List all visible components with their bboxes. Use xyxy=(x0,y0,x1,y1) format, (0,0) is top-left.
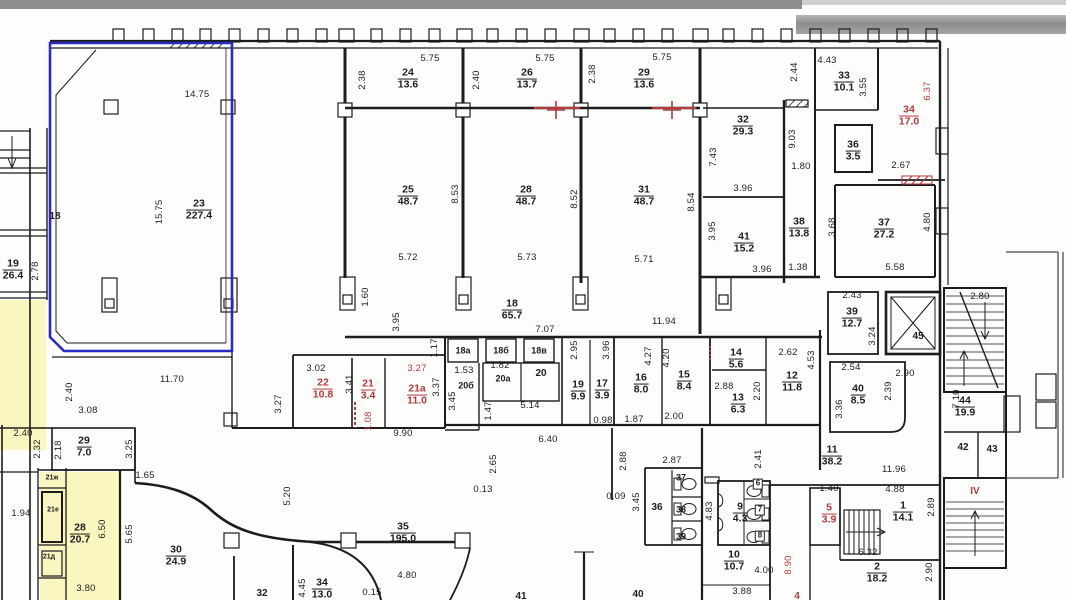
dimension-label: 3.96 xyxy=(602,340,612,359)
dimension-label: 2.88 xyxy=(619,451,629,470)
dimension-label: 5.58 xyxy=(885,263,904,273)
dimension-label: 9.90 xyxy=(393,429,412,439)
dimension-label: 2.18 xyxy=(54,440,64,459)
text-label-45: 45 xyxy=(912,332,923,342)
dimension-label: 3.45 xyxy=(448,391,458,410)
dimension-label: 3.02 xyxy=(306,364,325,374)
dimension-label: 2.65 xyxy=(489,454,499,473)
dimension-label: 11.94 xyxy=(652,317,676,327)
floor-plan: 23227.42413.62613.72913.63310.13417.0322… xyxy=(0,0,1066,600)
dimension-label: 1.60 xyxy=(361,287,371,306)
text-label-40: 40 xyxy=(632,590,643,600)
text-label-38: 38 xyxy=(676,505,686,514)
dimension-label: 2.38 xyxy=(588,64,598,83)
dimension-label: 0.13 xyxy=(473,485,492,495)
room-label-11: 1138.2 xyxy=(822,445,842,468)
dimension-label: 5.65 xyxy=(125,524,135,543)
dimension-label: 3.68 xyxy=(828,217,838,236)
dimension-label: 2.95 xyxy=(570,340,580,359)
dimension-label: 1.80 xyxy=(791,162,810,172)
text-label-20б: 20б xyxy=(458,381,474,390)
dimension-label: 4.83 xyxy=(705,501,715,520)
room-label-28: 2820.7 xyxy=(70,523,90,546)
dimension-label: 5.75 xyxy=(535,54,554,64)
dimension-label: 6.40 xyxy=(538,435,557,445)
dimension-label: 3.55 xyxy=(859,77,869,96)
dimension-label: 2.80 xyxy=(970,292,989,302)
room-label-36: 363.5 xyxy=(846,140,861,163)
room-label-32: 3229.3 xyxy=(733,115,753,138)
dimension-label: 2.40 xyxy=(65,382,75,401)
dimension-label: 4.27 xyxy=(644,346,654,365)
dimension-label: 4.80 xyxy=(923,212,933,231)
room-label-13: 136.3 xyxy=(731,393,746,416)
text-label-20: 20 xyxy=(535,369,546,379)
room-label-16: 168.0 xyxy=(634,373,649,396)
dimension-label: 2.44 xyxy=(790,62,800,81)
text-label-7: 7 xyxy=(755,505,765,516)
dimension-label: 3.08 xyxy=(78,406,97,416)
dimension-label: 2.87 xyxy=(662,456,681,466)
dimension-label: 0.15 xyxy=(362,588,381,598)
dimension-label: 1.53 xyxy=(454,366,473,376)
room-label-14: 145.6 xyxy=(729,348,744,371)
dimension-label: 1.94 xyxy=(11,509,30,519)
text-label-4: 4 xyxy=(794,592,800,600)
dimension-label: 11.70 xyxy=(160,375,184,385)
dimension-label: 1.47 xyxy=(484,401,494,420)
dimension-label: 2.43 xyxy=(842,291,861,301)
dimension-label: 5.73 xyxy=(517,253,536,263)
dimension-label: 5.20 xyxy=(283,486,293,505)
dimension-label: 1.38 xyxy=(788,263,807,273)
dimension-label: 1.65 xyxy=(135,471,154,481)
dimension-label: 15.75 xyxy=(155,200,165,225)
room-label-31: 3148.7 xyxy=(634,185,654,208)
dimension-label: 2.78 xyxy=(31,261,41,280)
text-label-6: 6 xyxy=(753,479,763,490)
dimension-label: 2.41 xyxy=(754,449,764,468)
room-label-24: 2413.6 xyxy=(398,68,418,91)
room-label-39: 3912.7 xyxy=(842,307,862,330)
dimension-label: 2.90 xyxy=(895,369,914,379)
dimension-label: 3.96 xyxy=(733,184,752,194)
text-label-20а: 20а xyxy=(495,374,510,383)
text-label-36: 36 xyxy=(651,503,662,513)
dimension-label: 3.88 xyxy=(732,587,751,597)
dimension-label: 3.80 xyxy=(76,584,95,594)
dimension-label: 2.20 xyxy=(753,381,763,400)
dimension-label: 3.41 xyxy=(345,374,355,393)
room-label-1: 114.1 xyxy=(893,501,913,524)
dimension-label: 8.53 xyxy=(451,184,461,203)
dimension-label: 8.54 xyxy=(687,192,697,211)
room-label-26: 2613.7 xyxy=(517,68,537,91)
dimension-label: 4.43 xyxy=(817,56,836,66)
room-label-17: 173.9 xyxy=(595,379,610,402)
room-label-37: 3727.2 xyxy=(874,218,894,241)
room-label-12: 1211.8 xyxy=(782,371,802,394)
dimension-label: 11.96 xyxy=(882,465,906,475)
room-label-22: 2210.8 xyxy=(313,378,333,401)
text-label-IV: IV xyxy=(970,487,979,497)
dimension-label: 4.20 xyxy=(662,348,672,367)
room-label-38: 3813.8 xyxy=(789,217,809,240)
room-label-19: 1926.4 xyxy=(3,259,23,282)
dimension-label: 2.39 xyxy=(884,381,894,400)
room-label-35: 35195.0 xyxy=(390,522,416,545)
text-label-21е: 21е xyxy=(47,506,59,513)
dimension-label: 2.40 xyxy=(472,70,482,89)
room-label-18: 1865.7 xyxy=(502,299,522,322)
room-label-33: 3310.1 xyxy=(834,71,854,94)
dimension-label: 4.80 xyxy=(397,571,416,581)
room-label-28: 2848.7 xyxy=(516,185,536,208)
text-label-32: 32 xyxy=(256,589,267,599)
room-label-41: 4115.2 xyxy=(734,232,754,255)
dimension-label: 2.00 xyxy=(664,412,683,422)
text-label-18а: 18а xyxy=(455,346,470,355)
room-label-23: 23227.4 xyxy=(186,199,212,222)
room-label-5: 53.9 xyxy=(822,503,837,526)
dimension-label: 2.40 xyxy=(13,429,32,439)
text-label-43: 43 xyxy=(986,445,997,455)
dimension-label: 14.75 xyxy=(185,90,210,100)
dimension-label: 3.27 xyxy=(407,364,426,374)
dimension-label: 4.53 xyxy=(807,350,817,369)
room-label-2: 218.2 xyxy=(867,562,887,585)
room-label-21а: 21а11.0 xyxy=(407,384,427,407)
dimension-label: 3.95 xyxy=(708,221,718,240)
room-label-29: 297.0 xyxy=(77,436,92,459)
dimension-label: 3.45 xyxy=(632,492,642,511)
dimension-label: 1.40 xyxy=(819,484,838,494)
dimension-label: 2.88 xyxy=(714,382,733,392)
text-label-39: 39 xyxy=(676,532,686,541)
dimension-label: 8.90 xyxy=(784,555,794,574)
dimension-label: 5.72 xyxy=(398,253,417,263)
dimension-label: 3.36 xyxy=(835,399,845,418)
dimension-label: 0.98 xyxy=(593,416,612,426)
room-label-10: 1010.7 xyxy=(724,550,744,573)
text-label-18: 18 xyxy=(49,212,60,222)
room-label-19: 199.9 xyxy=(571,380,586,403)
text-label-21д: 21д xyxy=(43,553,55,560)
dimension-label: 2.89 xyxy=(927,497,937,516)
text-label-42: 42 xyxy=(957,443,968,453)
dimension-label: 2.67 xyxy=(891,161,910,171)
dimension-label: 5.75 xyxy=(652,53,671,63)
dimension-label: 2.54 xyxy=(841,363,860,373)
dimension-label: 3.24 xyxy=(868,326,878,345)
dimension-label: 7.43 xyxy=(709,147,719,166)
dimension-label: 1.08 xyxy=(364,411,374,430)
dimension-label: 5.14 xyxy=(520,401,539,411)
dimension-label: 6.32 xyxy=(858,548,877,558)
room-label-9: 94.3 xyxy=(733,502,748,525)
text-label-37: 37 xyxy=(676,473,686,482)
dimension-label: 2.62 xyxy=(778,348,797,358)
dimension-label: 4.88 xyxy=(885,485,904,495)
room-label-15: 158.4 xyxy=(677,370,692,393)
dimension-label: 2.38 xyxy=(358,70,368,89)
dimension-label: 9.03 xyxy=(788,129,798,148)
dimension-label: 2.32 xyxy=(33,439,43,458)
dimension-label: 3.96 xyxy=(752,265,771,275)
dimension-label: 5.75 xyxy=(420,54,439,64)
dimension-label: 1.87 xyxy=(624,415,643,425)
dimension-label: 4.00 xyxy=(754,566,773,576)
labels-layer: 23227.42413.62613.72913.63310.13417.0322… xyxy=(0,0,1066,600)
room-label-29: 2913.6 xyxy=(634,68,654,91)
room-label-34: 3413.0 xyxy=(312,578,332,600)
dimension-label: 6.37 xyxy=(923,81,933,100)
text-label-41: 41 xyxy=(515,592,526,600)
dimension-label: 8.52 xyxy=(570,189,580,208)
dimension-label: 3.95 xyxy=(392,312,402,331)
room-label-25: 2548.7 xyxy=(398,185,418,208)
dimension-label: 6.50 xyxy=(98,519,108,538)
dimension-label: 3.27 xyxy=(274,394,284,413)
room-label-21: 213.4 xyxy=(361,379,376,402)
dimension-label: 3.37 xyxy=(432,377,442,396)
text-label-18б: 18б xyxy=(493,346,509,355)
dimension-label: 1.82 xyxy=(490,361,509,371)
text-label-8: 8 xyxy=(755,531,765,542)
room-label-30: 3024.9 xyxy=(166,545,186,568)
dimension-label: 3.25 xyxy=(125,439,135,458)
text-label-18в: 18в xyxy=(531,346,547,355)
room-label-40: 408.5 xyxy=(851,384,866,407)
dimension-label: 7.10 xyxy=(952,389,962,408)
dimension-label: 7.07 xyxy=(535,325,554,335)
room-label-34: 3417.0 xyxy=(899,105,919,128)
dimension-label: 1.17 xyxy=(430,338,440,357)
dimension-label: 2.90 xyxy=(925,562,935,581)
text-label-21ж: 21ж xyxy=(46,474,59,481)
dimension-label: 0.09 xyxy=(606,492,625,502)
dimension-label: 4.45 xyxy=(298,578,308,597)
dimension-label: 5.71 xyxy=(634,255,653,265)
